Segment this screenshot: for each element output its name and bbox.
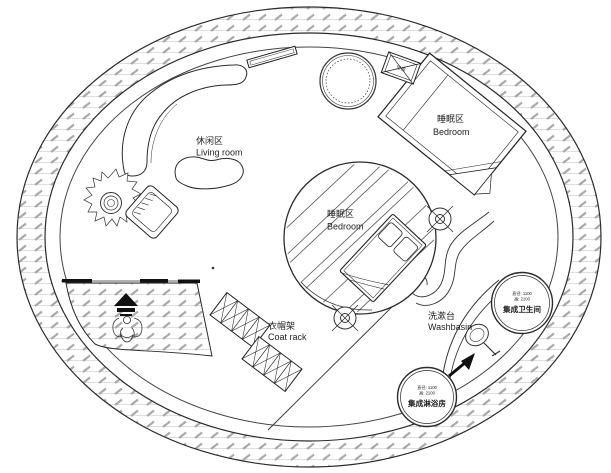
bedroom-center-label-en: Bedroom [327, 222, 364, 232]
washbasin-label-cn: 洗漱台 [428, 310, 455, 321]
shower-pod-label: 集成淋浴房 [407, 398, 446, 408]
coffee-table [175, 157, 243, 189]
coat-rack-label-en: Coat rack [268, 332, 307, 342]
floor-plan-page: 空调 [0, 0, 611, 473]
column-marker-icon [332, 305, 358, 331]
washbasin-label-en: Washbasin [428, 322, 472, 332]
bedroom-upper-label-cn: 睡眠区 [437, 113, 464, 124]
bathroom-spec-diameter: 直径: 1100 [512, 290, 532, 296]
shower-pod: 直径: 1100 高: 2100 集成淋浴房 [398, 368, 457, 427]
bedroom-center-label-cn: 睡眠区 [327, 208, 354, 219]
floor-plan-svg: 空调 [0, 0, 611, 473]
living-room-label-cn: 休闲区 [196, 135, 223, 146]
bedroom-circle [262, 141, 454, 331]
bathroom-pod-label: 集成卫生间 [502, 304, 541, 314]
shower-spec-diameter: 直径: 1100 [417, 384, 437, 390]
shower-spec-height: 高: 2100 [419, 390, 436, 397]
ac-unit-icon: 空调 [381, 52, 420, 84]
round-table [320, 53, 376, 109]
bedroom-upper-label-en: Bedroom [433, 127, 470, 137]
bathroom-spec-height: 高: 2100 [514, 296, 531, 303]
column-marker-icon [427, 206, 453, 232]
reference-dot [212, 267, 215, 270]
living-room-label-en: Living room [196, 148, 243, 158]
bathroom-pod: 直径: 1100 高: 2100 集成卫生间 [492, 273, 553, 334]
coat-rack-label-cn: 衣帽架 [268, 320, 295, 331]
